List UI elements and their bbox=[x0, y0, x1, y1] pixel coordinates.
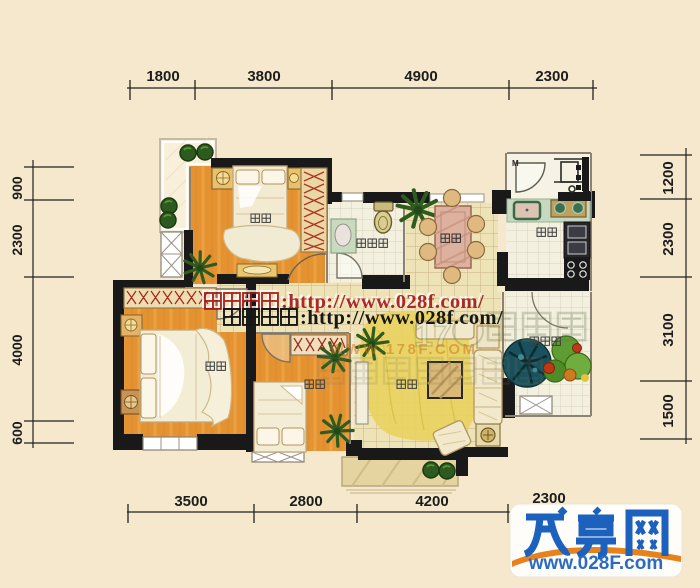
svg-text:WWW.178F.COM: WWW.178F.COM bbox=[330, 341, 478, 358]
svg-text:2800: 2800 bbox=[289, 493, 322, 510]
svg-text:600: 600 bbox=[9, 421, 25, 445]
svg-text:2300: 2300 bbox=[535, 68, 568, 85]
svg-text:900: 900 bbox=[9, 176, 25, 200]
svg-text:3800: 3800 bbox=[247, 68, 280, 85]
svg-text:3100: 3100 bbox=[660, 313, 677, 346]
svg-text:3500: 3500 bbox=[174, 493, 207, 510]
svg-text:www.028F.com: www.028F.com bbox=[528, 553, 663, 574]
svg-text:1200: 1200 bbox=[660, 161, 677, 194]
svg-text:M: M bbox=[512, 159, 519, 168]
svg-text:4200: 4200 bbox=[415, 493, 448, 510]
svg-text:2300: 2300 bbox=[9, 224, 25, 255]
svg-text::http://www.028f.com/: :http://www.028f.com/ bbox=[300, 307, 503, 329]
svg-text:1800: 1800 bbox=[146, 68, 179, 85]
svg-text:2300: 2300 bbox=[660, 222, 677, 255]
svg-text:1500: 1500 bbox=[660, 394, 677, 427]
svg-text:4000: 4000 bbox=[9, 334, 25, 365]
svg-text:4900: 4900 bbox=[404, 68, 437, 85]
